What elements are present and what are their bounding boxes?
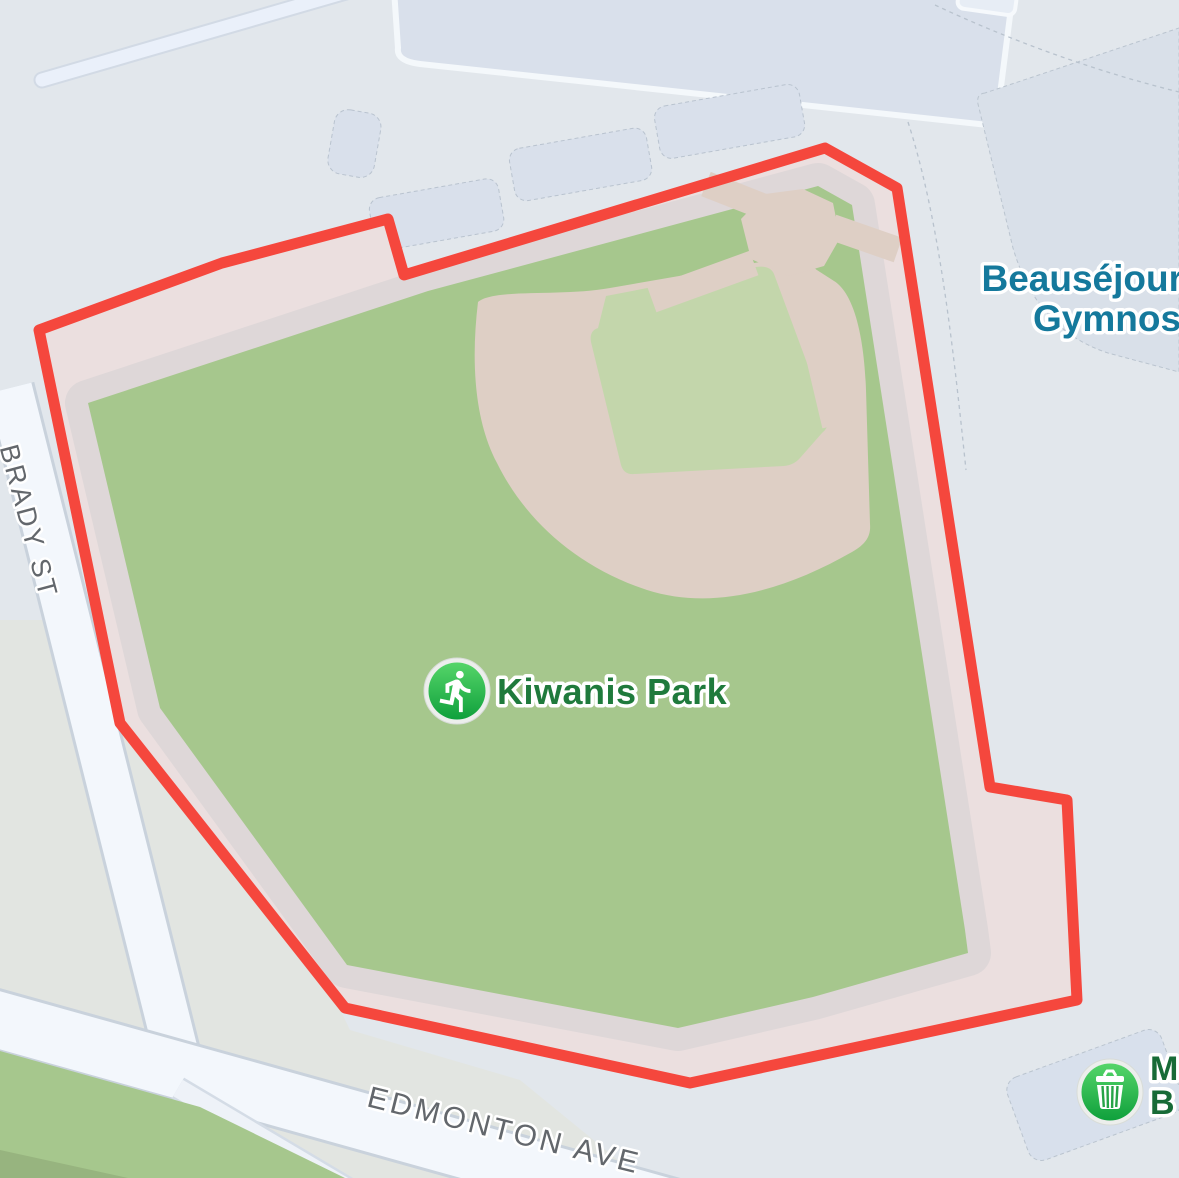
waste-basket-icon[interactable] bbox=[1077, 1059, 1143, 1125]
poi-beausejour-line2[interactable]: Gymnos bbox=[1033, 298, 1179, 339]
poi-beausejour-line1[interactable]: Beauséjour bbox=[981, 258, 1179, 299]
poi-bin-line1[interactable]: M bbox=[1150, 1050, 1178, 1088]
poi-bin-line2[interactable]: B bbox=[1150, 1084, 1175, 1122]
park-label[interactable]: Kiwanis Park bbox=[497, 671, 728, 712]
map-view: BRADY ST EDMONTON AVE Kiwanis Park Beaus… bbox=[0, 0, 1179, 1178]
runner-icon[interactable] bbox=[424, 658, 490, 724]
map-canvas[interactable]: BRADY ST EDMONTON AVE Kiwanis Park Beaus… bbox=[0, 0, 1179, 1178]
